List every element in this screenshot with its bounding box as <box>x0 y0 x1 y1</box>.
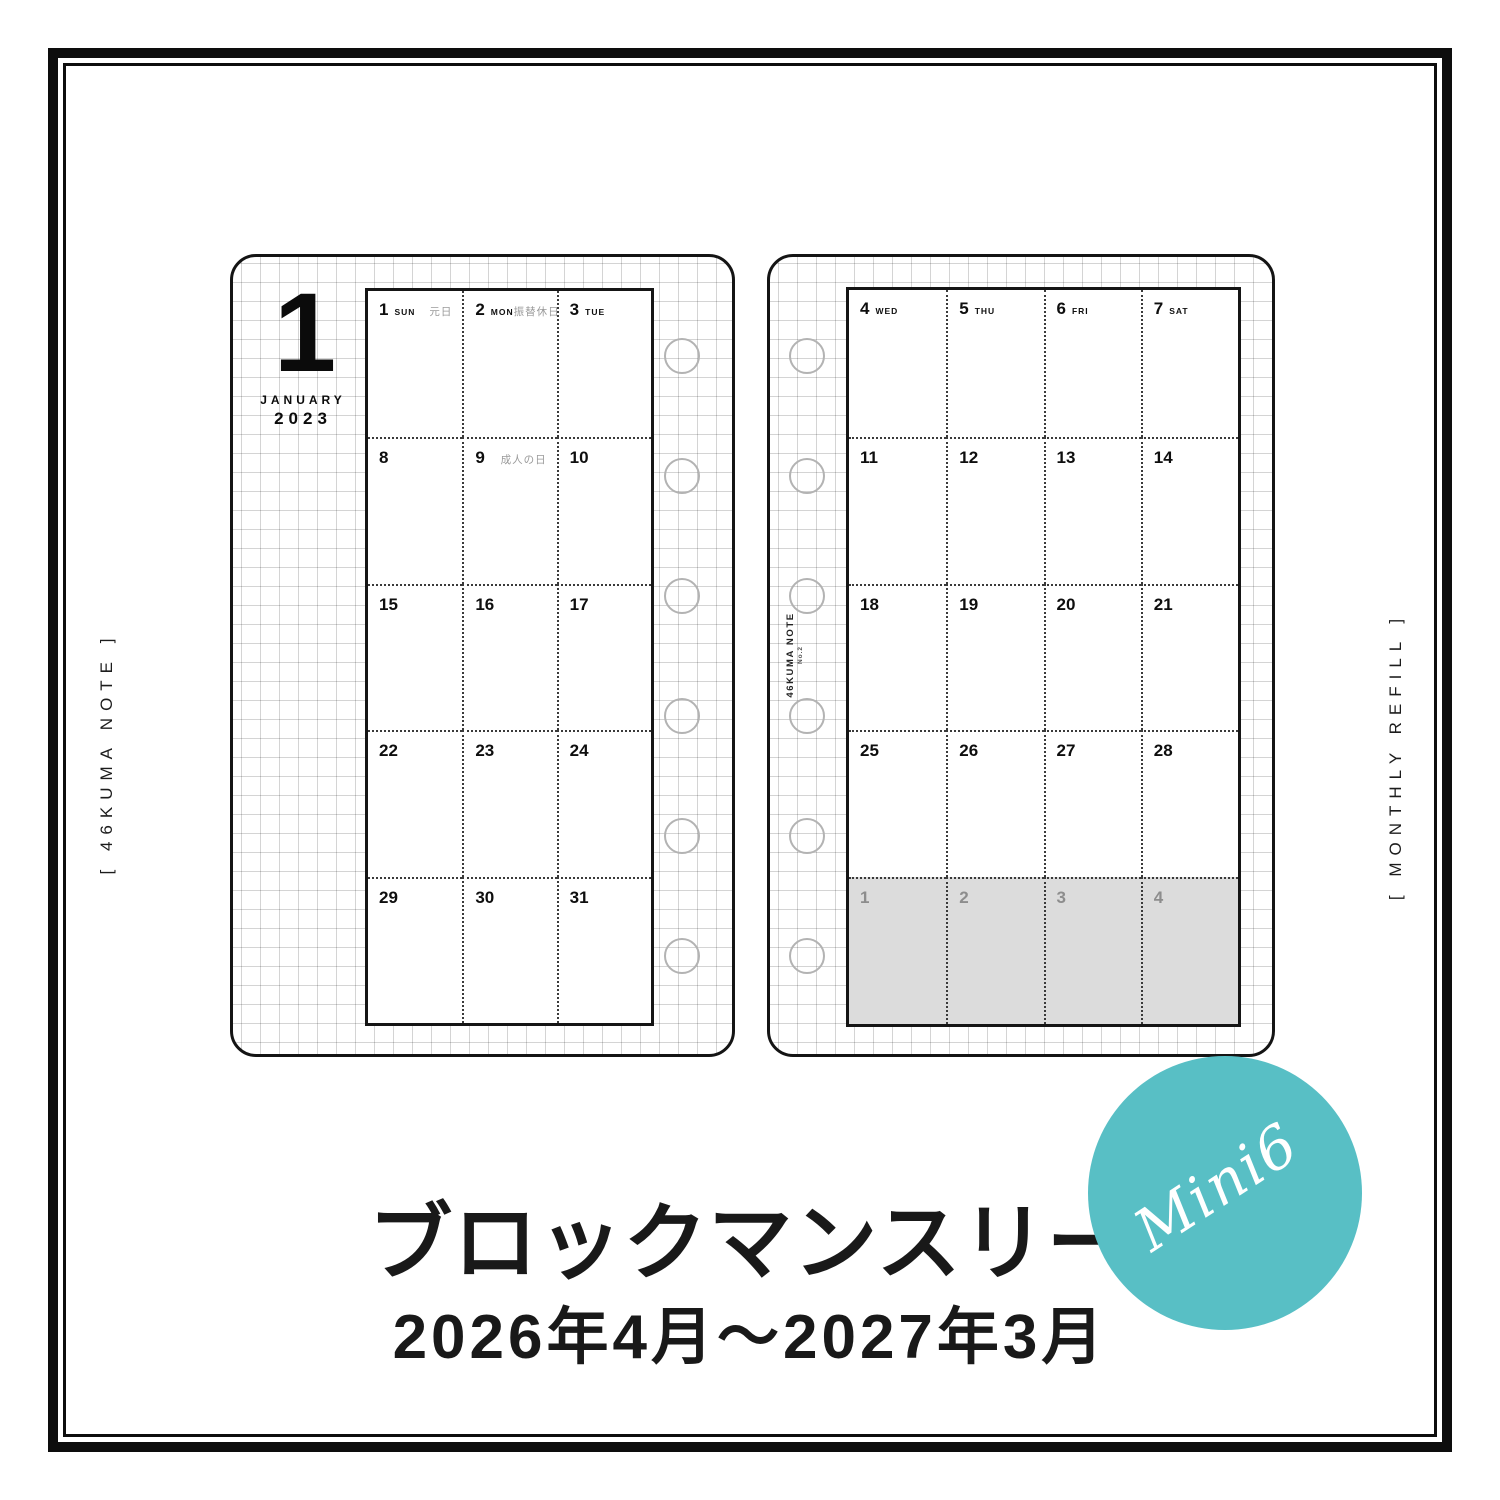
month-year-label: 2023 <box>245 409 361 429</box>
day-number: 22 <box>379 741 398 761</box>
spine-brand-text: 46KUMA NOTE <box>785 592 796 718</box>
weekday-label: WED <box>875 306 898 316</box>
day-number: 23 <box>475 741 494 761</box>
day-number: 30 <box>475 888 494 908</box>
calendar-cell-day-14: 14 <box>1141 437 1238 584</box>
day-number: 1 <box>379 300 388 320</box>
calendar-week-row: 1SUN元日2MON振替休日3TUE <box>368 291 651 437</box>
month-name-label: JANUARY <box>245 393 361 407</box>
day-number: 27 <box>1057 741 1076 761</box>
weekday-label: TUE <box>585 307 605 317</box>
binder-hole <box>789 458 825 494</box>
calendar-cell-day-10: 10 <box>557 437 651 583</box>
calendar-cell-day-9: 9成人の日 <box>462 437 556 583</box>
calendar-cell-day-30: 30 <box>462 877 556 1023</box>
calendar-cell-day-2: 2MON振替休日 <box>462 291 556 437</box>
calendar-cell-day-25: 25 <box>849 730 946 877</box>
binder-hole <box>789 938 825 974</box>
day-number: 26 <box>959 741 978 761</box>
day-number: 4 <box>860 299 869 319</box>
day-number: 10 <box>570 448 589 468</box>
day-number: 3 <box>1057 888 1066 908</box>
calendar-cell-day-19: 19 <box>946 584 1043 731</box>
calendar-cell-day-13: 13 <box>1044 437 1141 584</box>
day-number: 3 <box>570 300 579 320</box>
calendar-cell-day-17: 17 <box>557 584 651 730</box>
day-number: 2 <box>475 300 484 320</box>
day-number: 11 <box>860 448 878 468</box>
day-number: 8 <box>379 448 388 468</box>
badge-script-text: Mini6 <box>1122 1109 1311 1264</box>
month-numeral: 1 <box>245 287 361 379</box>
day-number: 15 <box>379 595 398 615</box>
calendar-cell-day-24: 24 <box>557 730 651 876</box>
calendar-cell-day-3: 3TUE <box>557 291 651 437</box>
calendar-week-row: 1234 <box>849 877 1238 1024</box>
day-number: 5 <box>959 299 968 319</box>
calendar-cell-day-28: 28 <box>1141 730 1238 877</box>
holiday-label: 元日 <box>429 304 452 319</box>
calendar-cell-day-26: 26 <box>946 730 1043 877</box>
side-label-refill-type: [ MONTHLY REFILL ] <box>1384 546 1408 966</box>
calendar-week-row: 18192021 <box>849 584 1238 731</box>
calendar-cell-day-15: 15 <box>368 584 462 730</box>
calendar-cell-day-4: 4 <box>1141 877 1238 1024</box>
calendar-cell-day-23: 23 <box>462 730 556 876</box>
day-number: 28 <box>1154 741 1173 761</box>
calendar-week-row: 25262728 <box>849 730 1238 877</box>
day-number: 1 <box>860 888 869 908</box>
day-number: 17 <box>570 595 589 615</box>
day-number: 29 <box>379 888 398 908</box>
calendar-cell-day-2: 2 <box>946 877 1043 1024</box>
calendar-cell-day-12: 12 <box>946 437 1043 584</box>
side-label-brand: [ 46KUMA NOTE ] <box>95 543 119 963</box>
calendar-week-row: 4WED5THU6FRI7SAT <box>849 290 1238 437</box>
day-number: 4 <box>1154 888 1163 908</box>
binder-hole <box>664 698 700 734</box>
weekday-label: THU <box>975 306 995 316</box>
calendar-cell-day-7: 7SAT <box>1141 290 1238 437</box>
planner-left-page: 1 JANUARY 2023 1SUN元日2MON振替休日3TUE89成人の日1… <box>230 254 735 1057</box>
calendar-week-row: 11121314 <box>849 437 1238 584</box>
binder-hole <box>664 458 700 494</box>
day-number: 12 <box>959 448 978 468</box>
binder-hole <box>664 938 700 974</box>
weekday-label: SUN <box>394 307 415 317</box>
calendar-week-row: 151617 <box>368 584 651 730</box>
calendar-week-row: 89成人の日10 <box>368 437 651 583</box>
calendar-week-row: 222324 <box>368 730 651 876</box>
calendar-cell-day-20: 20 <box>1044 584 1141 731</box>
binder-hole <box>789 818 825 854</box>
weekday-label: MON <box>491 307 514 317</box>
holiday-label: 振替休日 <box>514 304 560 319</box>
calendar-cell-day-1: 1 <box>849 877 946 1024</box>
calendar-cell-day-3: 3 <box>1044 877 1141 1024</box>
day-number: 16 <box>475 595 494 615</box>
calendar-cell-day-5: 5THU <box>946 290 1043 437</box>
binder-hole <box>664 818 700 854</box>
day-number: 13 <box>1057 448 1076 468</box>
binder-hole <box>664 338 700 374</box>
day-number: 19 <box>959 595 978 615</box>
calendar-cell-day-16: 16 <box>462 584 556 730</box>
calendar-cell-day-4: 4WED <box>849 290 946 437</box>
day-number: 7 <box>1154 299 1163 319</box>
day-number: 21 <box>1154 595 1173 615</box>
holiday-label: 成人の日 <box>501 452 547 467</box>
calendar-cell-day-27: 27 <box>1044 730 1141 877</box>
binder-hole <box>789 338 825 374</box>
calendar-cell-day-18: 18 <box>849 584 946 731</box>
calendar-cell-day-11: 11 <box>849 437 946 584</box>
calendar-cell-day-22: 22 <box>368 730 462 876</box>
calendar-cell-day-8: 8 <box>368 437 462 583</box>
day-number: 25 <box>860 741 879 761</box>
day-number: 24 <box>570 741 589 761</box>
month-heading: 1 JANUARY 2023 <box>245 287 361 429</box>
weekday-label: FRI <box>1072 306 1089 316</box>
weekday-label: SAT <box>1169 306 1188 316</box>
day-number: 31 <box>570 888 589 908</box>
binder-hole <box>789 698 825 734</box>
day-number: 6 <box>1057 299 1066 319</box>
calendar-week-row: 293031 <box>368 877 651 1023</box>
day-number: 20 <box>1057 595 1076 615</box>
calendar-cell-day-1: 1SUN元日 <box>368 291 462 437</box>
calendar-grid-left: 1SUN元日2MON振替休日3TUE89成人の日1015161722232429… <box>365 288 654 1026</box>
calendar-cell-day-6: 6FRI <box>1044 290 1141 437</box>
day-number: 18 <box>860 595 879 615</box>
binder-hole <box>664 578 700 614</box>
planner-product-image: [ 46KUMA NOTE ] [ MONTHLY REFILL ] 1 JAN… <box>0 0 1500 1500</box>
calendar-cell-day-29: 29 <box>368 877 462 1023</box>
mini6-badge: Mini6 <box>1088 1056 1362 1330</box>
planner-right-page: 46KUMA NOTE No.2 4WED5THU6FRI7SAT1112131… <box>767 254 1275 1057</box>
binder-hole <box>789 578 825 614</box>
calendar-grid-right: 4WED5THU6FRI7SAT111213141819202125262728… <box>846 287 1241 1027</box>
day-number: 9 <box>475 448 484 468</box>
day-number: 2 <box>959 888 968 908</box>
calendar-cell-day-21: 21 <box>1141 584 1238 731</box>
day-number: 14 <box>1154 448 1173 468</box>
calendar-cell-day-31: 31 <box>557 877 651 1023</box>
